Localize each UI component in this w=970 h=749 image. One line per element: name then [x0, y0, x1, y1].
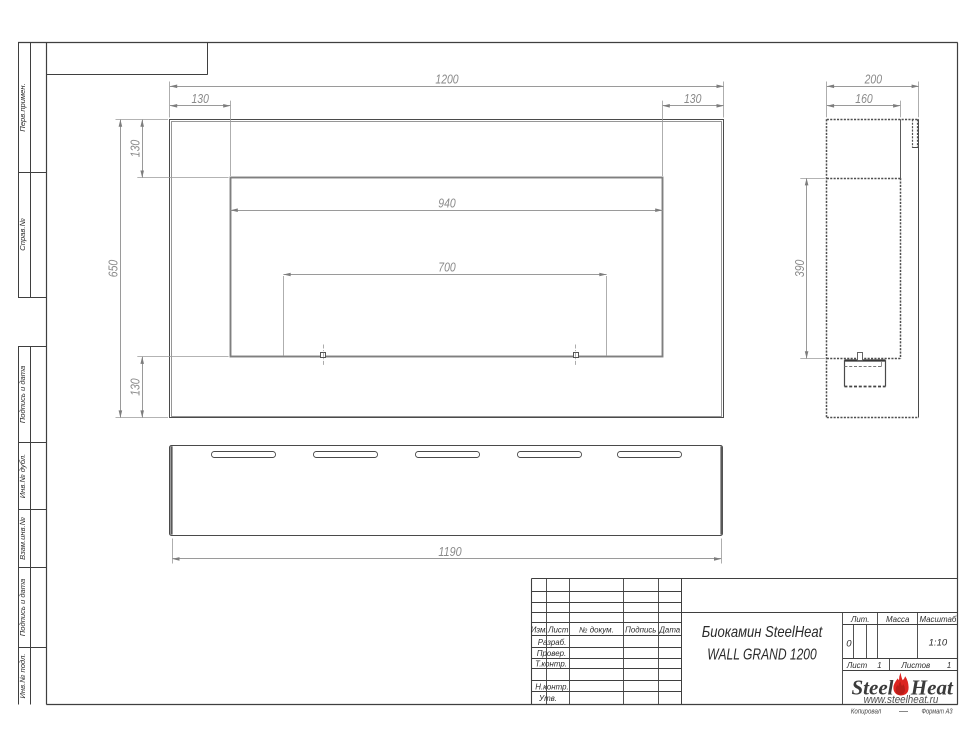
svg-text:200: 200 — [864, 71, 883, 86]
svg-text:Справ.№: Справ.№ — [18, 218, 27, 250]
svg-text:1190: 1190 — [438, 544, 462, 559]
svg-text:Подпись и дата: Подпись и дата — [18, 366, 27, 423]
svg-text:Лит.: Лит. — [850, 615, 869, 624]
svg-text:Подпись и дата: Подпись и дата — [18, 579, 27, 636]
svg-text:Лист: Лист — [547, 625, 569, 634]
svg-text:130: 130 — [127, 139, 142, 157]
svg-text:700: 700 — [438, 260, 456, 275]
svg-text:0: 0 — [846, 638, 852, 649]
svg-text:Формат А3: Формат А3 — [922, 706, 953, 715]
svg-text:Масштаб: Масштаб — [919, 615, 956, 624]
svg-text:Утв.: Утв. — [538, 694, 557, 703]
svg-text:Инв.№ подл.: Инв.№ подл. — [18, 653, 27, 698]
svg-text:1:10: 1:10 — [929, 637, 948, 648]
svg-text:390: 390 — [792, 259, 807, 277]
svg-text:Листов: Листов — [900, 661, 930, 670]
svg-text:Дата: Дата — [658, 625, 680, 634]
svg-text:Разраб.: Разраб. — [538, 638, 567, 647]
svg-text:Масса: Масса — [886, 615, 910, 624]
svg-text:Взам.инв.№: Взам.инв.№ — [18, 517, 27, 560]
svg-text:1: 1 — [947, 661, 951, 670]
svg-text:Лист: Лист — [846, 661, 868, 670]
svg-text:Провер.: Провер. — [537, 649, 566, 658]
svg-text:WALL GRAND 1200: WALL GRAND 1200 — [707, 647, 816, 664]
svg-text:www.steelheat.ru: www.steelheat.ru — [864, 694, 939, 706]
svg-text:Биокамин SteelHeat: Биокамин SteelHeat — [702, 624, 823, 641]
svg-text:Перв.примен.: Перв.примен. — [18, 83, 27, 131]
svg-text:1200: 1200 — [435, 71, 459, 86]
svg-text:Изм.: Изм. — [531, 625, 548, 634]
svg-text:1: 1 — [877, 661, 881, 670]
svg-text:Н.контр.: Н.контр. — [535, 682, 568, 691]
svg-text:130: 130 — [127, 378, 142, 396]
svg-text:Инв.№ дубл.: Инв.№ дубл. — [18, 454, 27, 499]
svg-text:Т.контр.: Т.контр. — [535, 659, 567, 668]
svg-text:130: 130 — [684, 91, 702, 106]
svg-text:160: 160 — [855, 91, 873, 106]
svg-text:Подпись: Подпись — [625, 625, 656, 634]
svg-text:130: 130 — [192, 91, 210, 106]
svg-text:650: 650 — [106, 259, 121, 277]
svg-text:№ докум.: № докум. — [579, 625, 614, 634]
svg-text:940: 940 — [438, 195, 456, 210]
svg-text:Копировал: Копировал — [851, 706, 882, 715]
